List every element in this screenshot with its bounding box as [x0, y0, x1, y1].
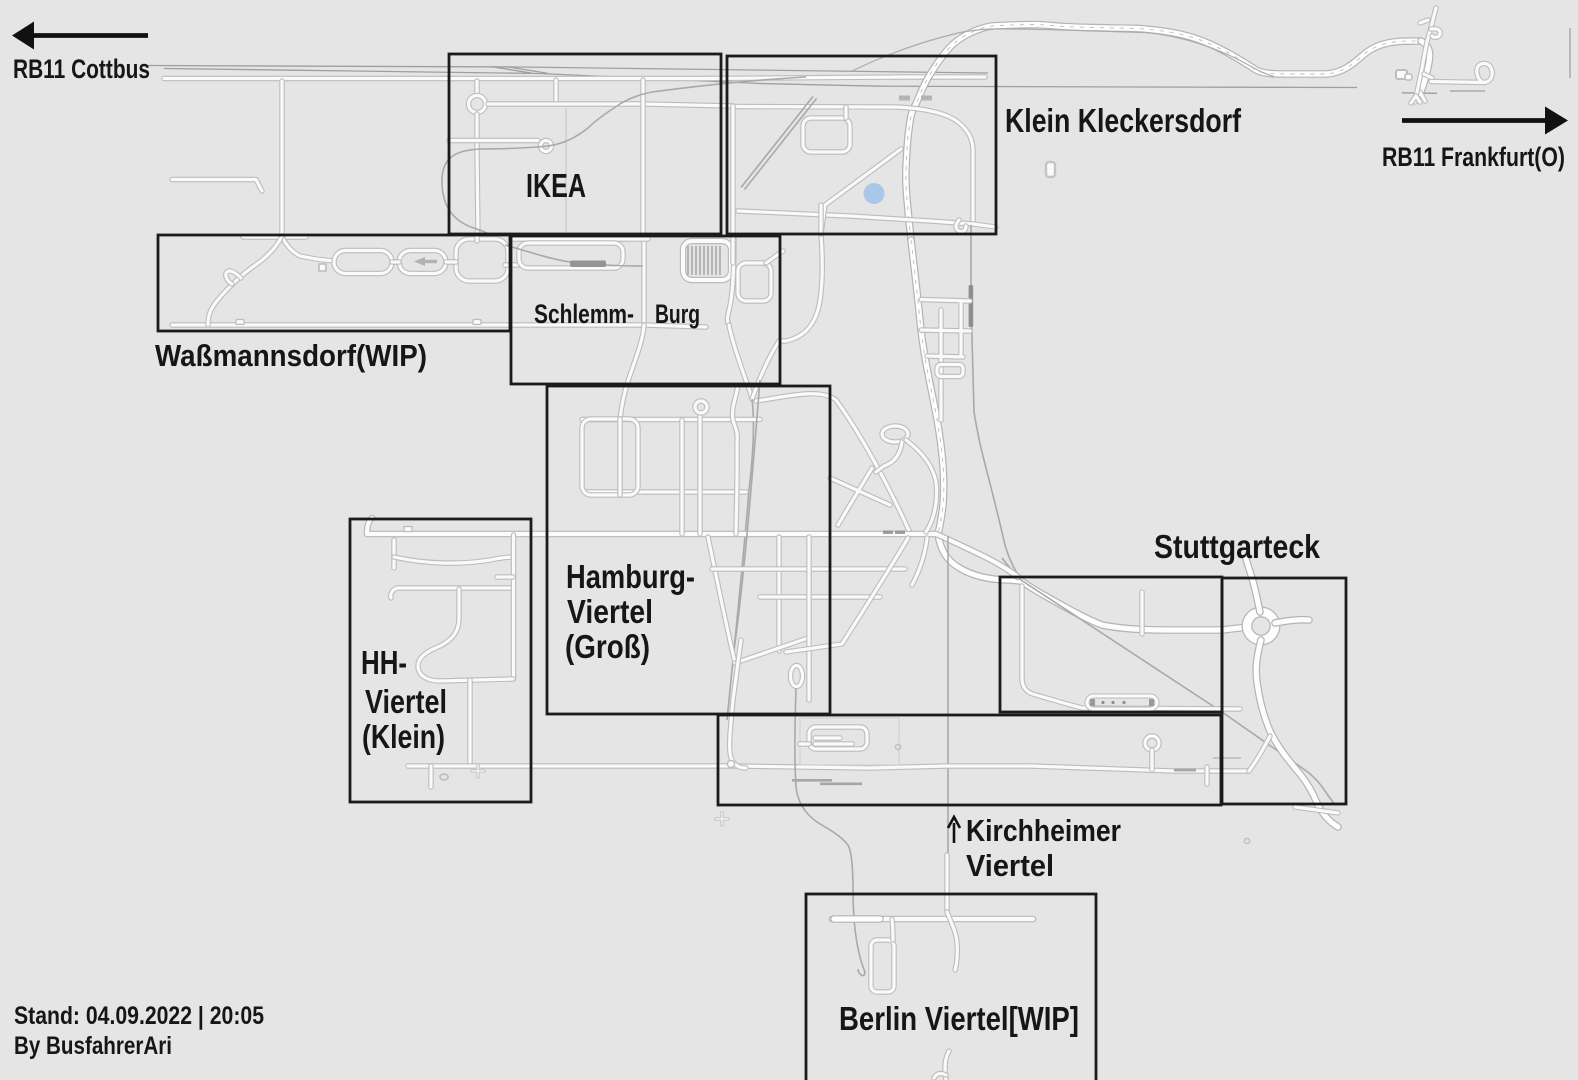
svg-text:Berlin Viertel[WIP]: Berlin Viertel[WIP] [839, 1000, 1079, 1037]
svg-text:Stuttgarteck: Stuttgarteck [1154, 528, 1321, 565]
svg-text:(Klein): (Klein) [362, 718, 445, 755]
svg-text:Burg: Burg [655, 299, 700, 329]
svg-text:Viertel: Viertel [567, 593, 653, 630]
svg-text:Viertel: Viertel [966, 848, 1054, 883]
svg-text:IKEA: IKEA [526, 167, 586, 204]
svg-text:Klein Kleckersdorf: Klein Kleckersdorf [1005, 102, 1242, 139]
svg-text:Schlemm-: Schlemm- [534, 299, 634, 329]
svg-text:Kirchheimer: Kirchheimer [966, 813, 1121, 848]
svg-text:Viertel: Viertel [365, 683, 447, 720]
svg-text:(Groß): (Groß) [565, 628, 650, 665]
svg-text:By BusfahrerAri: By BusfahrerAri [14, 1032, 172, 1060]
svg-text:Hamburg-: Hamburg- [566, 558, 695, 595]
svg-text:Waßmannsdorf(WIP): Waßmannsdorf(WIP) [155, 338, 427, 373]
svg-text:Stand: 04.09.2022 | 20:05: Stand: 04.09.2022 | 20:05 [14, 1002, 264, 1030]
svg-text:HH-: HH- [361, 644, 407, 681]
svg-text:RB11 Cottbus: RB11 Cottbus [13, 54, 150, 84]
svg-text:RB11 Frankfurt(O): RB11 Frankfurt(O) [1382, 142, 1565, 172]
